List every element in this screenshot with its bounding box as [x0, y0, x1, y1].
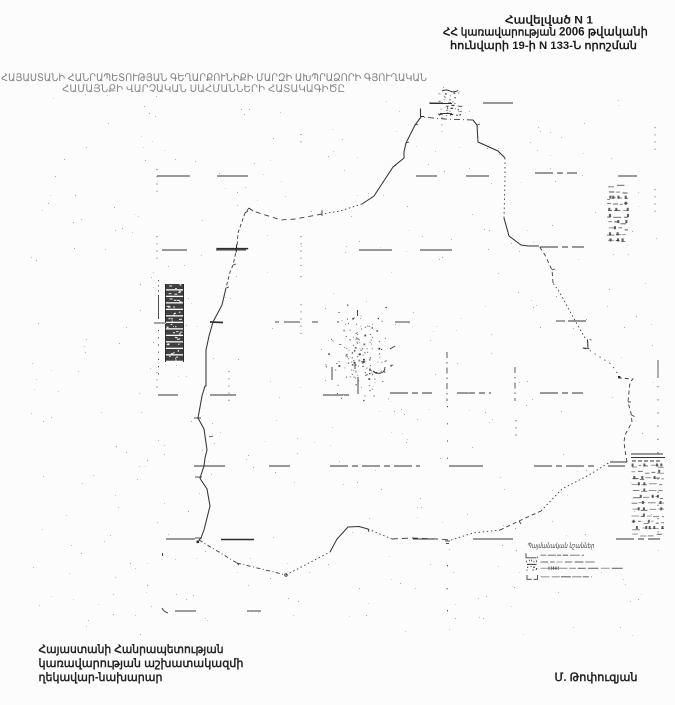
- svg-text:ՀՀ կառավարության 2006 թվականի: ՀՀ կառավարության 2006 թվականի: [443, 25, 648, 39]
- svg-text:Մ. Թոփուզյան: Մ. Թոփուզյան: [555, 671, 638, 684]
- svg-text:Հայաստանի Հանրապետության: Հայաստանի Հանրապետության: [39, 643, 224, 656]
- svg-text:հունվարի 19-ի N 133-Ն որոշման: հունվարի 19-ի N 133-Ն որոշման: [450, 39, 637, 52]
- svg-text:ՀԱՄԱՅՆՔԻ ՎԱՐՉԱԿԱՆ ՍԱՀՄԱՆՆԵՐԻ Հ: ՀԱՄԱՅՆՔԻ ՎԱՐՉԱԿԱՆ ՍԱՀՄԱՆՆԵՐԻ ՀԱՏԱԿԱԳԻԾԸ: [62, 83, 345, 95]
- svg-text:կառավարության աշխատակազմի: կառավարության աշխատակազմի: [39, 657, 244, 670]
- svg-text:ղեկավար-նախարար: ղեկավար-նախարար: [39, 671, 163, 684]
- svg-text:Պայմանական նշաններ: Պայմանական նշաններ: [527, 541, 594, 550]
